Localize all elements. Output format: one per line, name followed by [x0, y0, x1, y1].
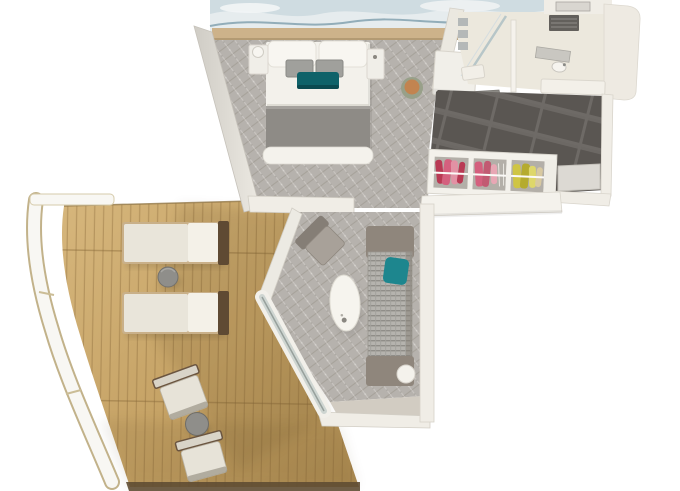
- corridor-right-wall: [601, 94, 613, 196]
- shower-fixture: [458, 42, 468, 50]
- sun-lounger-1: [122, 221, 229, 268]
- wardrobe: [427, 149, 557, 199]
- bathroom: [458, 0, 640, 100]
- towel-rack: [556, 2, 590, 11]
- sun-lounger-2: [122, 291, 229, 338]
- lounger-frame: [218, 221, 229, 265]
- deck-fascia: [126, 482, 360, 491]
- king-bed: [263, 41, 373, 164]
- shower-fixture: [458, 18, 468, 26]
- shower-fixture: [458, 30, 468, 38]
- shower-tray: [461, 65, 485, 81]
- bed-blanket: [266, 106, 370, 152]
- ceiling-vent: [549, 15, 579, 31]
- sofa: [366, 226, 415, 386]
- bedroom-bottom-wall: [248, 196, 354, 214]
- deck-shadow-2: [100, 420, 358, 487]
- bed-foot-roll: [263, 147, 373, 164]
- lounger-frame: [218, 291, 229, 335]
- nightstand-right: [367, 49, 384, 79]
- entrance-door: [558, 164, 600, 191]
- side-table: [397, 365, 415, 383]
- bench: [541, 79, 605, 95]
- lamp: [253, 47, 264, 58]
- teal-throw-pillow: [382, 256, 409, 285]
- floorplan-canvas: [0, 0, 680, 491]
- living-room-right-wall: [420, 204, 434, 422]
- floorplan-render: [0, 0, 680, 491]
- bathroom-outer-wall: [604, 4, 640, 100]
- bathroom-divider: [511, 20, 516, 92]
- entry-hall: [420, 90, 613, 218]
- stool: [401, 77, 423, 99]
- nightstand-left: [249, 45, 268, 74]
- railing-top-bar: [30, 194, 114, 205]
